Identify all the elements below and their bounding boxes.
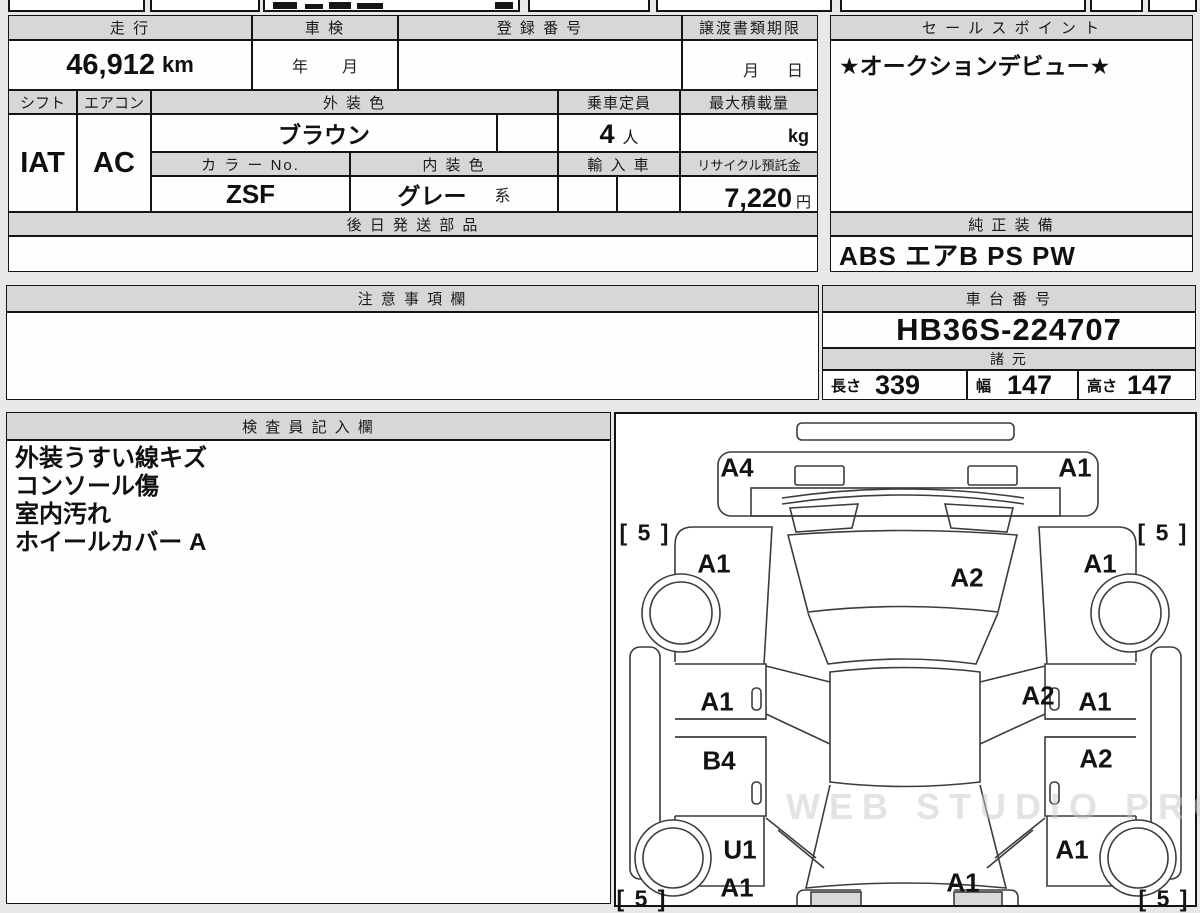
shaken-value: 年 月 — [252, 40, 398, 90]
capacity-value: 4 人 — [558, 114, 680, 152]
aircon-header: エアコン — [77, 90, 151, 114]
damage-code-right-front-door: A1 — [1078, 687, 1111, 718]
mileage-header: 走 行 — [8, 15, 252, 40]
vehicle-info-table: 走 行 車 検 登 録 番 号 譲渡書類期限 46,912 km 年 月 月 日… — [8, 15, 818, 272]
spec-length-value: 339 — [875, 370, 920, 401]
caution-value — [6, 312, 819, 400]
sales-point-text: ★オークションデビュー★ — [839, 47, 1110, 81]
interior-color-suffix: 系 — [494, 182, 510, 206]
damage-code-right-rear-fender: A1 — [1055, 835, 1088, 866]
registration-number-value — [398, 40, 682, 90]
exterior-color-value: ブラウン — [151, 114, 497, 152]
capacity-number: 4 — [599, 119, 614, 150]
car-outline-drawing — [616, 414, 1195, 905]
shaken-header: 車 検 — [252, 15, 398, 40]
import-car-value-2 — [617, 176, 680, 212]
exterior-color-name: ブラウン — [278, 116, 370, 150]
damage-code-left-front-fender: A1 — [697, 549, 730, 580]
clipped-cell — [8, 0, 145, 12]
equipment-text: ABS エアB PS PW — [839, 236, 1076, 273]
mileage-unit: km — [162, 52, 194, 78]
caution-header: 注 意 事 項 欄 — [6, 285, 819, 312]
recycle-deposit-number: 7,220 — [724, 183, 792, 214]
spec-length-label: 長さ — [831, 375, 861, 396]
chassis-header: 車 台 番 号 — [822, 285, 1196, 312]
transfer-docs-header: 譲渡書類期限 — [682, 15, 818, 40]
recycle-deposit-header: リサイクル預託金 — [680, 152, 818, 176]
transfer-month-placeholder: 月 — [743, 57, 759, 81]
mileage-number: 46,912 — [66, 49, 155, 82]
damage-code-left-rear-door: B4 — [702, 746, 735, 777]
spec-width: 幅 147 — [967, 370, 1078, 400]
spec-width-value: 147 — [1007, 370, 1052, 401]
shaken-month-placeholder: 月 — [342, 53, 358, 77]
chassis-value: HB36S-224707 — [822, 312, 1196, 348]
sales-point-value: ★オークションデビュー★ — [830, 40, 1193, 212]
tire-grade-front-right: [ 5 ] — [1138, 520, 1189, 547]
sales-point-header: セ ー ル ス ポ イ ン ト — [830, 15, 1193, 40]
inspector-header: 検 査 員 記 入 欄 — [6, 412, 611, 440]
equipment-header: 純 正 装 備 — [830, 212, 1193, 236]
clipped-cell — [656, 0, 832, 12]
car-diagram-box: WEB STUDIO PRO A4 A1 [ 5 ] [ 5 ] A1 A1 A… — [614, 412, 1197, 907]
inspector-block: 検 査 員 記 入 欄 外装うすい線キズ コンソール傷 室内汚れ ホイールカバー… — [6, 412, 611, 904]
auction-sheet: { "sheet": { "row1": { "mileage_label": … — [0, 0, 1200, 900]
damage-code-left-rear-fender: U1 — [723, 835, 756, 866]
interior-color-value: グレー 系 — [350, 176, 558, 212]
import-car-header: 輸 入 車 — [558, 152, 680, 176]
capacity-header: 乗車定員 — [558, 90, 680, 114]
damage-code-left-front-door: A1 — [700, 687, 733, 718]
clipped-text — [273, 2, 297, 9]
clipped-text — [305, 4, 323, 9]
max-load-header: 最大積載量 — [680, 90, 818, 114]
mileage-value: 46,912 km — [8, 40, 252, 90]
max-load-value: kg — [680, 114, 818, 152]
exterior-color-header: 外 装 色 — [151, 90, 558, 114]
shift-code: IAT — [20, 147, 65, 180]
max-load-unit: kg — [788, 126, 809, 147]
inspector-note-line: コンソール傷 — [15, 473, 159, 501]
spec-height-label: 高さ — [1087, 375, 1117, 396]
damage-code-rear-gate: A1 — [946, 868, 979, 899]
inspector-note-line: ホイールカバー A — [15, 529, 206, 557]
spec-height-value: 147 — [1127, 370, 1172, 401]
tire-grade-rear-right: [ 5 ] — [1139, 886, 1190, 913]
color-no-code: ZSF — [226, 179, 275, 210]
spec-height: 高さ 147 — [1078, 370, 1196, 400]
clipped-cell — [263, 0, 520, 12]
damage-code-front-bumper-right: A1 — [1058, 453, 1091, 484]
aircon-value: AC — [77, 114, 151, 212]
transfer-day-placeholder: 日 — [787, 57, 803, 81]
clipped-text — [329, 2, 351, 9]
chassis-block: 車 台 番 号 HB36S-224707 諸 元 長さ 339 幅 147 高さ… — [822, 285, 1196, 400]
damage-code-rear-left-corner: A1 — [720, 873, 753, 904]
specs-header: 諸 元 — [822, 348, 1196, 370]
clipped-text — [495, 2, 513, 9]
inspector-notes: 外装うすい線キズ コンソール傷 室内汚れ ホイールカバー A — [6, 440, 611, 904]
recycle-deposit-value: 7,220 円 — [680, 176, 818, 212]
damage-code-windshield: A2 — [950, 563, 983, 594]
interior-color-name: グレー — [397, 177, 466, 211]
chassis-number: HB36S-224707 — [896, 312, 1122, 348]
clipped-cell — [528, 0, 650, 12]
recycle-deposit-unit: 円 — [796, 191, 811, 212]
damage-code-right-rear-door: A2 — [1079, 744, 1112, 775]
damage-code-right-front-fender: A1 — [1083, 549, 1116, 580]
later-parts-header: 後 日 発 送 部 品 — [8, 212, 818, 236]
watermark: WEB STUDIO PRO — [786, 786, 1200, 828]
later-parts-value — [8, 236, 818, 272]
color-no-value: ZSF — [151, 176, 350, 212]
inspector-note-line: 室内汚れ — [15, 501, 111, 529]
clipped-cell — [150, 0, 260, 12]
import-car-value-1 — [558, 176, 617, 212]
exterior-color-extra — [497, 114, 558, 152]
caution-block: 注 意 事 項 欄 — [6, 285, 819, 400]
capacity-unit: 人 — [623, 124, 639, 148]
transfer-docs-value: 月 日 — [682, 40, 818, 90]
tire-grade-front-left: [ 5 ] — [620, 520, 671, 547]
clipped-cell — [840, 0, 1086, 12]
shaken-year-placeholder: 年 — [292, 53, 308, 77]
spec-length: 長さ 339 — [822, 370, 967, 400]
inspector-note-line: 外装うすい線キズ — [15, 445, 207, 473]
damage-code-front-bumper-left: A4 — [720, 453, 753, 484]
aircon-code: AC — [93, 147, 135, 180]
color-no-header: カ ラ ー No. — [151, 152, 350, 176]
damage-code-hood-right: A2 — [1021, 681, 1054, 712]
clipped-text — [357, 3, 383, 9]
clipped-cell — [1148, 0, 1197, 12]
spec-width-label: 幅 — [976, 375, 991, 396]
registration-number-header: 登 録 番 号 — [398, 15, 682, 40]
clipped-cell — [1090, 0, 1143, 12]
equipment-value: ABS エアB PS PW — [830, 236, 1193, 272]
shift-value: IAT — [8, 114, 77, 212]
sales-point-block: セ ー ル ス ポ イ ン ト ★オークションデビュー★ 純 正 装 備 ABS… — [830, 15, 1193, 272]
shift-header: シフト — [8, 90, 77, 114]
interior-color-header: 内 装 色 — [350, 152, 558, 176]
tire-grade-rear-left: [ 5 ] — [617, 886, 668, 913]
